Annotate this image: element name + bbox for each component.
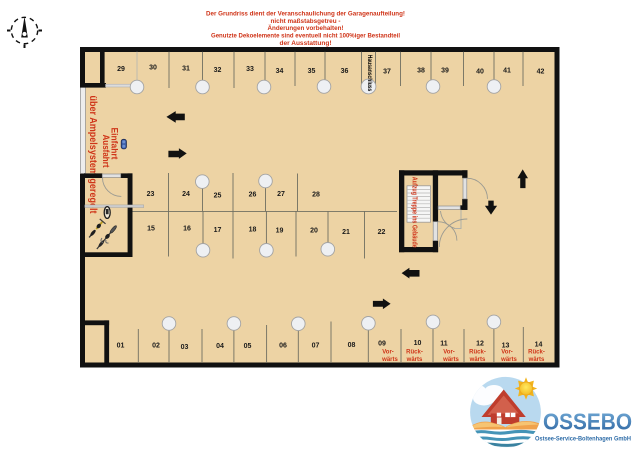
svg-text:32: 32 (214, 67, 222, 74)
svg-text:18: 18 (249, 227, 257, 234)
svg-text:Vor-: Vor- (443, 350, 455, 356)
svg-text:01: 01 (117, 343, 125, 350)
svg-text:07: 07 (312, 342, 320, 349)
svg-text:wärts: wärts (406, 357, 423, 363)
svg-text:04: 04 (216, 343, 224, 350)
svg-text:37: 37 (383, 69, 391, 76)
svg-text:33: 33 (246, 66, 254, 73)
svg-text:Aufzug Treppe ins Gebäude: Aufzug Treppe ins Gebäude (411, 177, 418, 248)
svg-text:13: 13 (502, 342, 510, 349)
svg-text:15: 15 (147, 226, 155, 233)
svg-text:Rück-: Rück- (528, 350, 545, 356)
svg-text:16: 16 (183, 226, 191, 233)
svg-text:Ostsee-Service-Boltenhagen Gmb: Ostsee-Service-Boltenhagen GmbH (535, 436, 631, 443)
svg-text:17: 17 (214, 227, 222, 234)
svg-text:über Ampelsystem geregelt: über Ampelsystem geregelt (87, 96, 99, 214)
svg-text:31: 31 (182, 66, 190, 73)
svg-text:Genutzte Dekoelemente sind eve: Genutzte Dekoelemente sind eventuell nic… (211, 33, 400, 40)
svg-text:05: 05 (244, 343, 252, 350)
svg-text:24: 24 (182, 191, 190, 198)
svg-text:25: 25 (214, 193, 222, 200)
svg-text:OSSEBO: OSSEBO (543, 409, 632, 435)
svg-text:nicht maßstabsgetreu -: nicht maßstabsgetreu - (271, 18, 341, 25)
svg-text:08: 08 (348, 342, 356, 349)
svg-text:20: 20 (310, 228, 318, 235)
svg-text:40: 40 (476, 69, 484, 76)
svg-text:28: 28 (312, 192, 320, 199)
svg-text:21: 21 (342, 229, 350, 236)
svg-text:Der Grundriss dient der Verans: Der Grundriss dient der Veranschaulichun… (206, 11, 405, 18)
svg-text:Hausanschluss: Hausanschluss (366, 55, 373, 92)
svg-text:09: 09 (378, 341, 386, 348)
svg-text:26: 26 (249, 192, 257, 199)
svg-text:Vor-: Vor- (501, 350, 513, 356)
svg-text:wärts: wärts (469, 357, 486, 363)
svg-text:wärts: wärts (500, 357, 517, 363)
svg-text:Änderungen vorbehalten!: Änderungen vorbehalten! (268, 24, 344, 32)
svg-text:34: 34 (276, 68, 284, 75)
svg-text:06: 06 (279, 342, 287, 349)
svg-text:Ausfahrt: Ausfahrt (101, 135, 111, 168)
svg-text:wärts: wärts (442, 357, 459, 363)
svg-text:35: 35 (308, 68, 316, 75)
svg-text:wärts: wärts (381, 357, 398, 363)
svg-text:02: 02 (152, 343, 160, 350)
svg-text:14: 14 (535, 342, 543, 349)
svg-text:41: 41 (503, 68, 511, 75)
svg-text:Rück-: Rück- (469, 350, 486, 356)
svg-text:36: 36 (341, 68, 349, 75)
svg-text:der Ausstattung!: der Ausstattung! (280, 40, 332, 47)
svg-text:23: 23 (147, 191, 155, 198)
svg-text:29: 29 (117, 66, 125, 73)
svg-text:11: 11 (440, 341, 448, 348)
svg-text:Rück-: Rück- (406, 350, 423, 356)
svg-text:Vor-: Vor- (382, 350, 394, 356)
svg-text:39: 39 (441, 68, 449, 75)
svg-text:03: 03 (181, 344, 189, 351)
svg-text:19: 19 (276, 228, 284, 235)
svg-text:10: 10 (414, 340, 422, 347)
svg-text:38: 38 (417, 68, 425, 75)
svg-text:30: 30 (149, 65, 157, 72)
svg-text:42: 42 (537, 69, 545, 76)
svg-text:22: 22 (378, 229, 386, 236)
svg-text:27: 27 (277, 191, 285, 198)
svg-text:wärts: wärts (528, 357, 545, 363)
svg-text:12: 12 (476, 341, 484, 348)
